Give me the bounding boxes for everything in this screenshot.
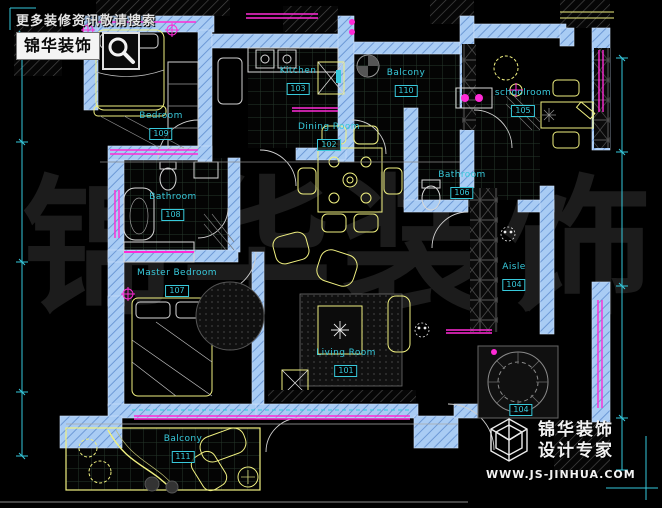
room-label-schoolroom: schoolroom 105 [495,88,551,117]
website-url: WWW.JS-JINHUA.COM [486,468,662,481]
room-name: Balcony [164,434,202,444]
room-number-badge: 109 [149,128,172,140]
room-number-badge: 103 [286,83,309,95]
room-number-medallion: 104 [509,397,532,416]
room-label-bathroom-right: Bathroom 106 [438,170,485,199]
company-name: 锦华装饰 [538,420,614,441]
room-name: Balcony [387,68,425,78]
company-tagline: 设计专家 [538,441,614,462]
room-label-bedroom: Bedroom 109 [139,111,183,140]
promo-overlay: 更多装修资讯敬请搜索 锦华装饰 [16,10,156,70]
room-name: Aisle [502,262,525,272]
room-number-badge: 105 [511,105,534,117]
room-name: Living Room [316,348,376,358]
room-name: Bathroom [149,192,196,202]
room-label-dining: Dining Room 102 [298,122,360,151]
room-name: Bedroom [139,111,183,121]
mascot-sticker-icons [415,227,515,337]
room-label-bathroom-left: Bathroom 108 [149,192,196,221]
room-number-badge: 110 [394,85,417,97]
room-label-kitchen: Kitchen 103 [280,66,317,95]
room-number-badge: 102 [317,139,340,151]
floorplan-canvas: 锦华装饰 [0,0,662,508]
room-label-master-bedroom: Master Bedroom 107 [137,268,217,297]
room-number-badge: 108 [161,209,184,221]
room-name: Master Bedroom [137,268,217,278]
cube-logo-icon [486,416,532,466]
search-hint-text: 更多装修资讯敬请搜索 [16,10,156,29]
magnifier-icon [106,36,136,66]
room-number-badge: 104 [509,404,532,416]
brand-badge: 锦华装饰 [16,32,100,60]
room-label-living: Living Room 101 [316,348,376,377]
master-bedroom-furniture [124,242,264,396]
room-number-badge: 107 [165,285,188,297]
room-name: Bathroom [438,170,485,180]
room-number-badge: 111 [171,451,194,463]
room-number-badge: 106 [450,187,473,199]
room-name: Kitchen [280,66,317,76]
magnifier-box [102,32,140,70]
room-label-balcony-top: Balcony 110 [387,68,425,97]
room-label-aisle: Aisle 104 [502,262,525,291]
room-label-balcony-bottom: Balcony 111 [164,434,202,463]
top-balcony-items [357,55,379,77]
room-number-badge: 104 [502,279,525,291]
room-name: schoolroom [495,88,551,98]
company-logo-block: 锦华装饰 设计专家 WWW.JS-JINHUA.COM [486,416,662,481]
room-name: Dining Room [298,122,360,132]
room-number-badge: 101 [334,365,357,377]
